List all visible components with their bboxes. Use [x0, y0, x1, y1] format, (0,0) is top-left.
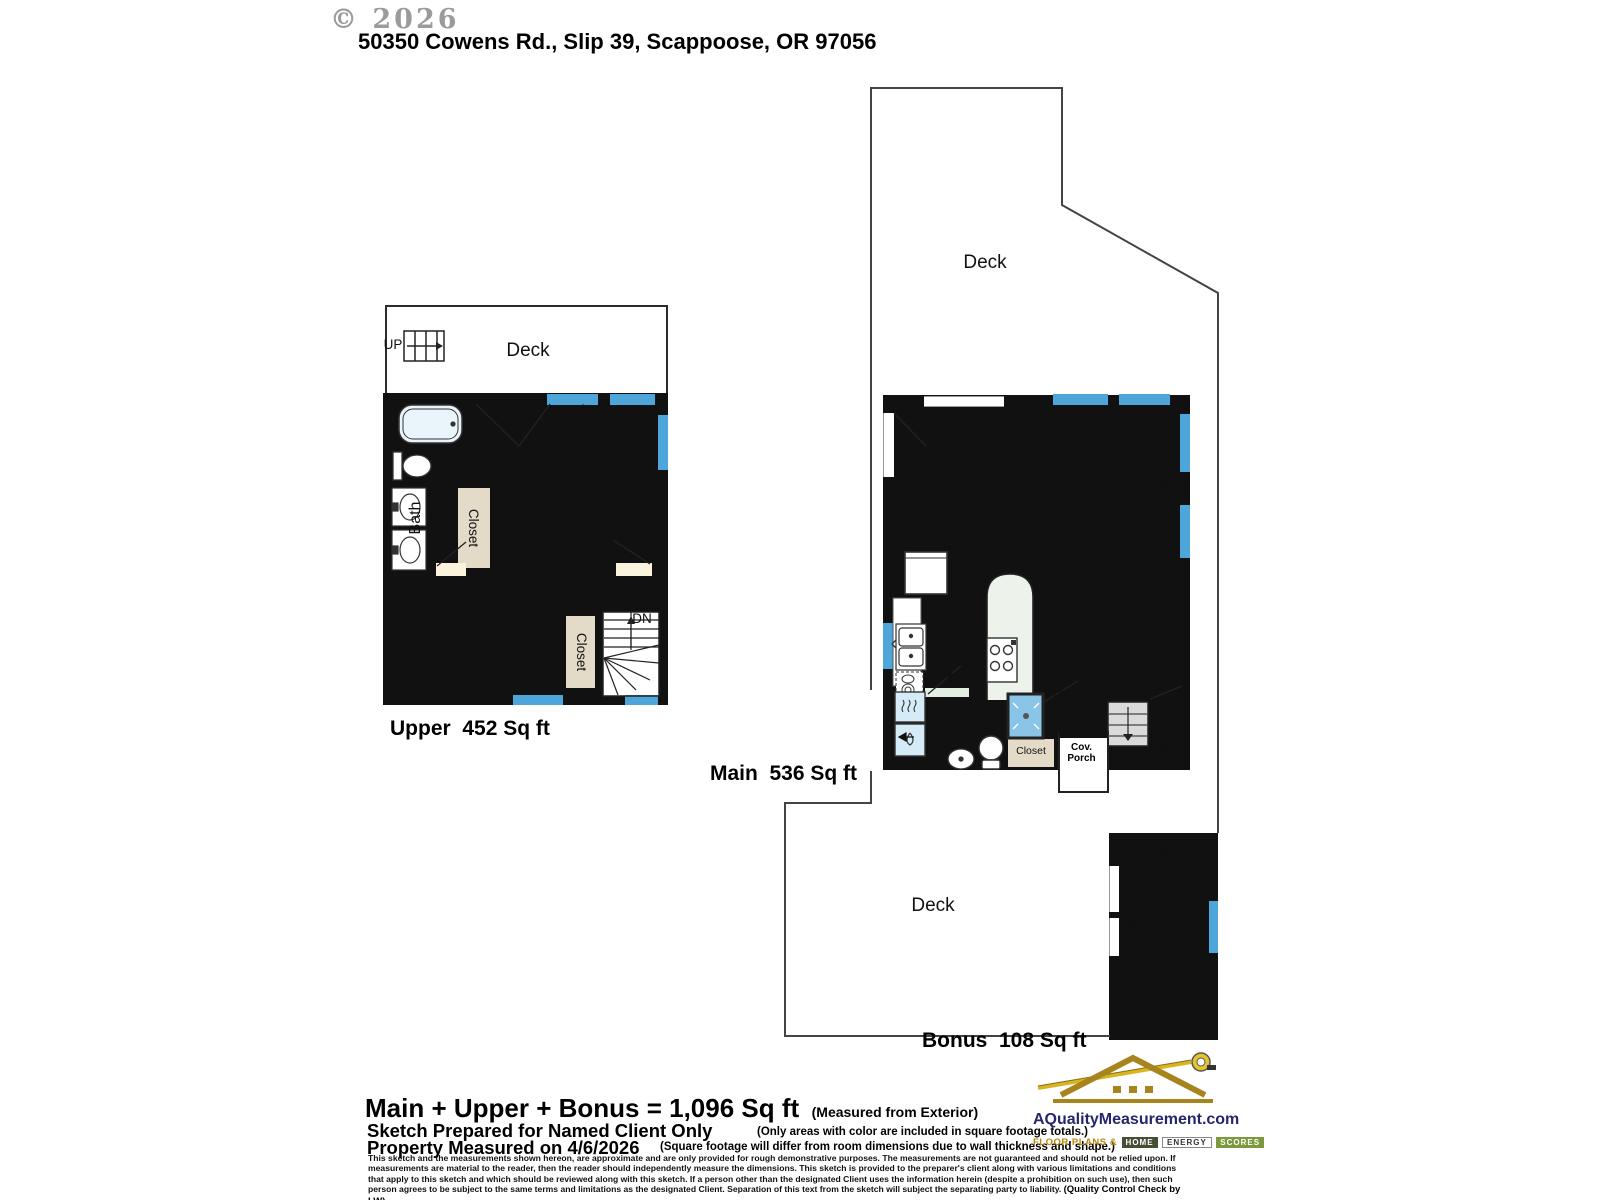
window [547, 394, 598, 405]
storage-left-wall [1147, 700, 1154, 748]
foyer-label: Foyer [1030, 686, 1096, 703]
logo-tagline: FLOOR PLANS & HOME ENERGY SCORES [1033, 1132, 1233, 1150]
disclaimer-text: This sketch and the measurements shown h… [368, 1153, 1176, 1194]
window [1119, 394, 1170, 405]
window [1053, 394, 1108, 405]
logo-house-icon [1033, 1050, 1233, 1105]
room-name: Bedroom [398, 612, 558, 631]
laundry-label: Laundry [929, 691, 943, 761]
room-name: Bonus [1114, 902, 1214, 920]
room-dims: 14'1" x 9'4" [398, 631, 558, 647]
stairs-door-gap [616, 563, 652, 576]
total-area: Main + Upper + Bonus = 1,096 Sq ft [365, 1093, 799, 1123]
living-label: Living 19'3" x 10'6" [938, 437, 1108, 472]
main-up-stairs [1108, 702, 1148, 746]
main-area-label: Main 536 Sq ft [710, 762, 857, 786]
disclaimer: This sketch and the measurements shown h… [368, 1153, 1190, 1200]
dn-label: DN [628, 611, 656, 626]
room-name: Primary Bedroom [470, 455, 662, 474]
bonus-walls [1109, 833, 1218, 1040]
primary-bedroom-label: Primary Bedroom 13' x 11'7" [470, 455, 662, 490]
room-dims: 19'3" x 10'6" [938, 456, 1108, 472]
floorplan-sketch: © 2026 50350 Cowens Rd., Slip 39, Scappo… [0, 0, 1600, 1200]
room-name: Living [938, 437, 1108, 456]
room-name: Kitchen [898, 520, 1060, 539]
tagline-energy: ENERGY [1162, 1137, 1212, 1148]
window [625, 695, 658, 705]
room-dims: 10'7" x 13'3" [898, 539, 1060, 555]
room-name: Bath [407, 443, 425, 593]
room-dims: 5'11" x 11'5" [425, 443, 440, 593]
kitchen-label: Kitchen 10'7" x 13'3" [898, 520, 1060, 555]
logo-domain: AQualityMeasurement.com [1033, 1111, 1233, 1129]
bonus-label: Bonus 6'6" x 13'5" [1114, 902, 1214, 936]
upper-closet-a-label: Closet [464, 488, 480, 568]
tagline-home: HOME [1122, 1137, 1158, 1148]
room-dims: 6'6" x 13'5" [1114, 920, 1214, 935]
main-up-label: UP [1112, 681, 1144, 698]
window [883, 623, 893, 669]
measured-from-note: (Measured from Exterior) [812, 1104, 978, 1120]
dining-label: Dining 10'7" x 12'4" [1022, 606, 1180, 641]
upper-up-label: UP [381, 337, 405, 352]
tagline-scores: SCORES [1216, 1137, 1264, 1148]
deck-railing-opening [924, 396, 1004, 407]
room-dims: 10'7" x 12'4" [1022, 625, 1180, 641]
upper-area-label: Upper 452 Sq ft [390, 717, 550, 741]
room-name: Dining [1022, 606, 1180, 625]
plan-linework [0, 0, 1600, 1200]
bath-corner-wall [462, 402, 488, 448]
lower-deck-label: Deck [886, 895, 980, 916]
left-wall-opening [883, 413, 894, 477]
room-dims: 13' x 11'7" [470, 474, 662, 490]
main-closet-label: Closet [1009, 746, 1053, 758]
window [1180, 505, 1190, 558]
cov-porch-label: Cov. Porch [1057, 742, 1106, 764]
storage-label: Storage [1158, 687, 1174, 767]
main-deck-label: Deck [938, 252, 1032, 273]
company-logo: AQualityMeasurement.com FLOOR PLANS & HO… [1033, 1050, 1233, 1150]
window [610, 394, 655, 405]
bedroom-label: Bedroom 14'1" x 9'4" [398, 612, 558, 647]
upper-deck-label: Deck [478, 340, 578, 361]
window [1180, 414, 1190, 472]
tagline-prefix: FLOOR PLANS & [1033, 1137, 1117, 1148]
page-title: 50350 Cowens Rd., Slip 39, Scappoose, OR… [358, 29, 876, 55]
window [513, 695, 563, 705]
upper-bath-label: Bath 5'11" x 11'5" [407, 443, 449, 593]
upper-closet-b-label: Closet [572, 612, 588, 692]
